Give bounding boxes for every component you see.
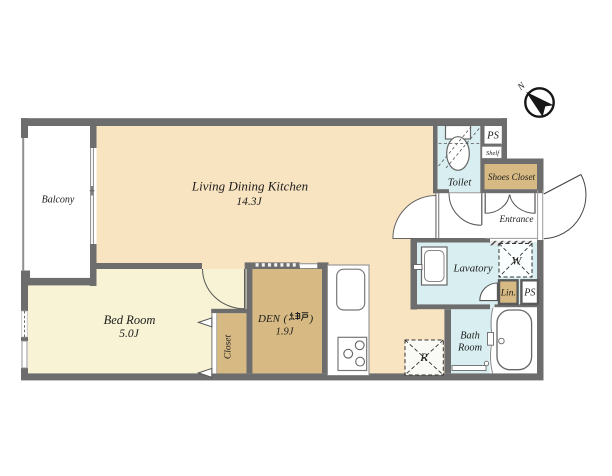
svg-text:Shoes Closet: Shoes Closet bbox=[488, 172, 536, 182]
svg-text:5.0J: 5.0J bbox=[119, 328, 139, 340]
svg-text:Closet: Closet bbox=[224, 335, 234, 360]
svg-text:Lin.: Lin. bbox=[500, 288, 516, 298]
svg-text:1.9J: 1.9J bbox=[276, 327, 295, 338]
svg-text:R: R bbox=[419, 350, 428, 364]
svg-text:PS: PS bbox=[523, 287, 535, 298]
svg-text:Room: Room bbox=[457, 342, 482, 353]
svg-text:Living Dining Kitchen: Living Dining Kitchen bbox=[191, 179, 308, 194]
svg-text:Balcony: Balcony bbox=[42, 194, 75, 205]
svg-text:Shelf: Shelf bbox=[486, 150, 500, 157]
svg-text:DEN: DEN bbox=[257, 313, 281, 325]
svg-text:W: W bbox=[512, 256, 523, 268]
svg-text:Lavatory: Lavatory bbox=[453, 262, 493, 274]
svg-text:Toilet: Toilet bbox=[448, 177, 473, 188]
svg-text:PS: PS bbox=[486, 130, 499, 141]
svg-text:14.3J: 14.3J bbox=[236, 196, 262, 208]
svg-text:Bed Room: Bed Room bbox=[104, 313, 156, 327]
svg-text:Entrance: Entrance bbox=[498, 215, 533, 225]
svg-text:N: N bbox=[516, 81, 529, 94]
svg-text:): ) bbox=[309, 313, 314, 325]
svg-text:Bath: Bath bbox=[460, 330, 479, 341]
